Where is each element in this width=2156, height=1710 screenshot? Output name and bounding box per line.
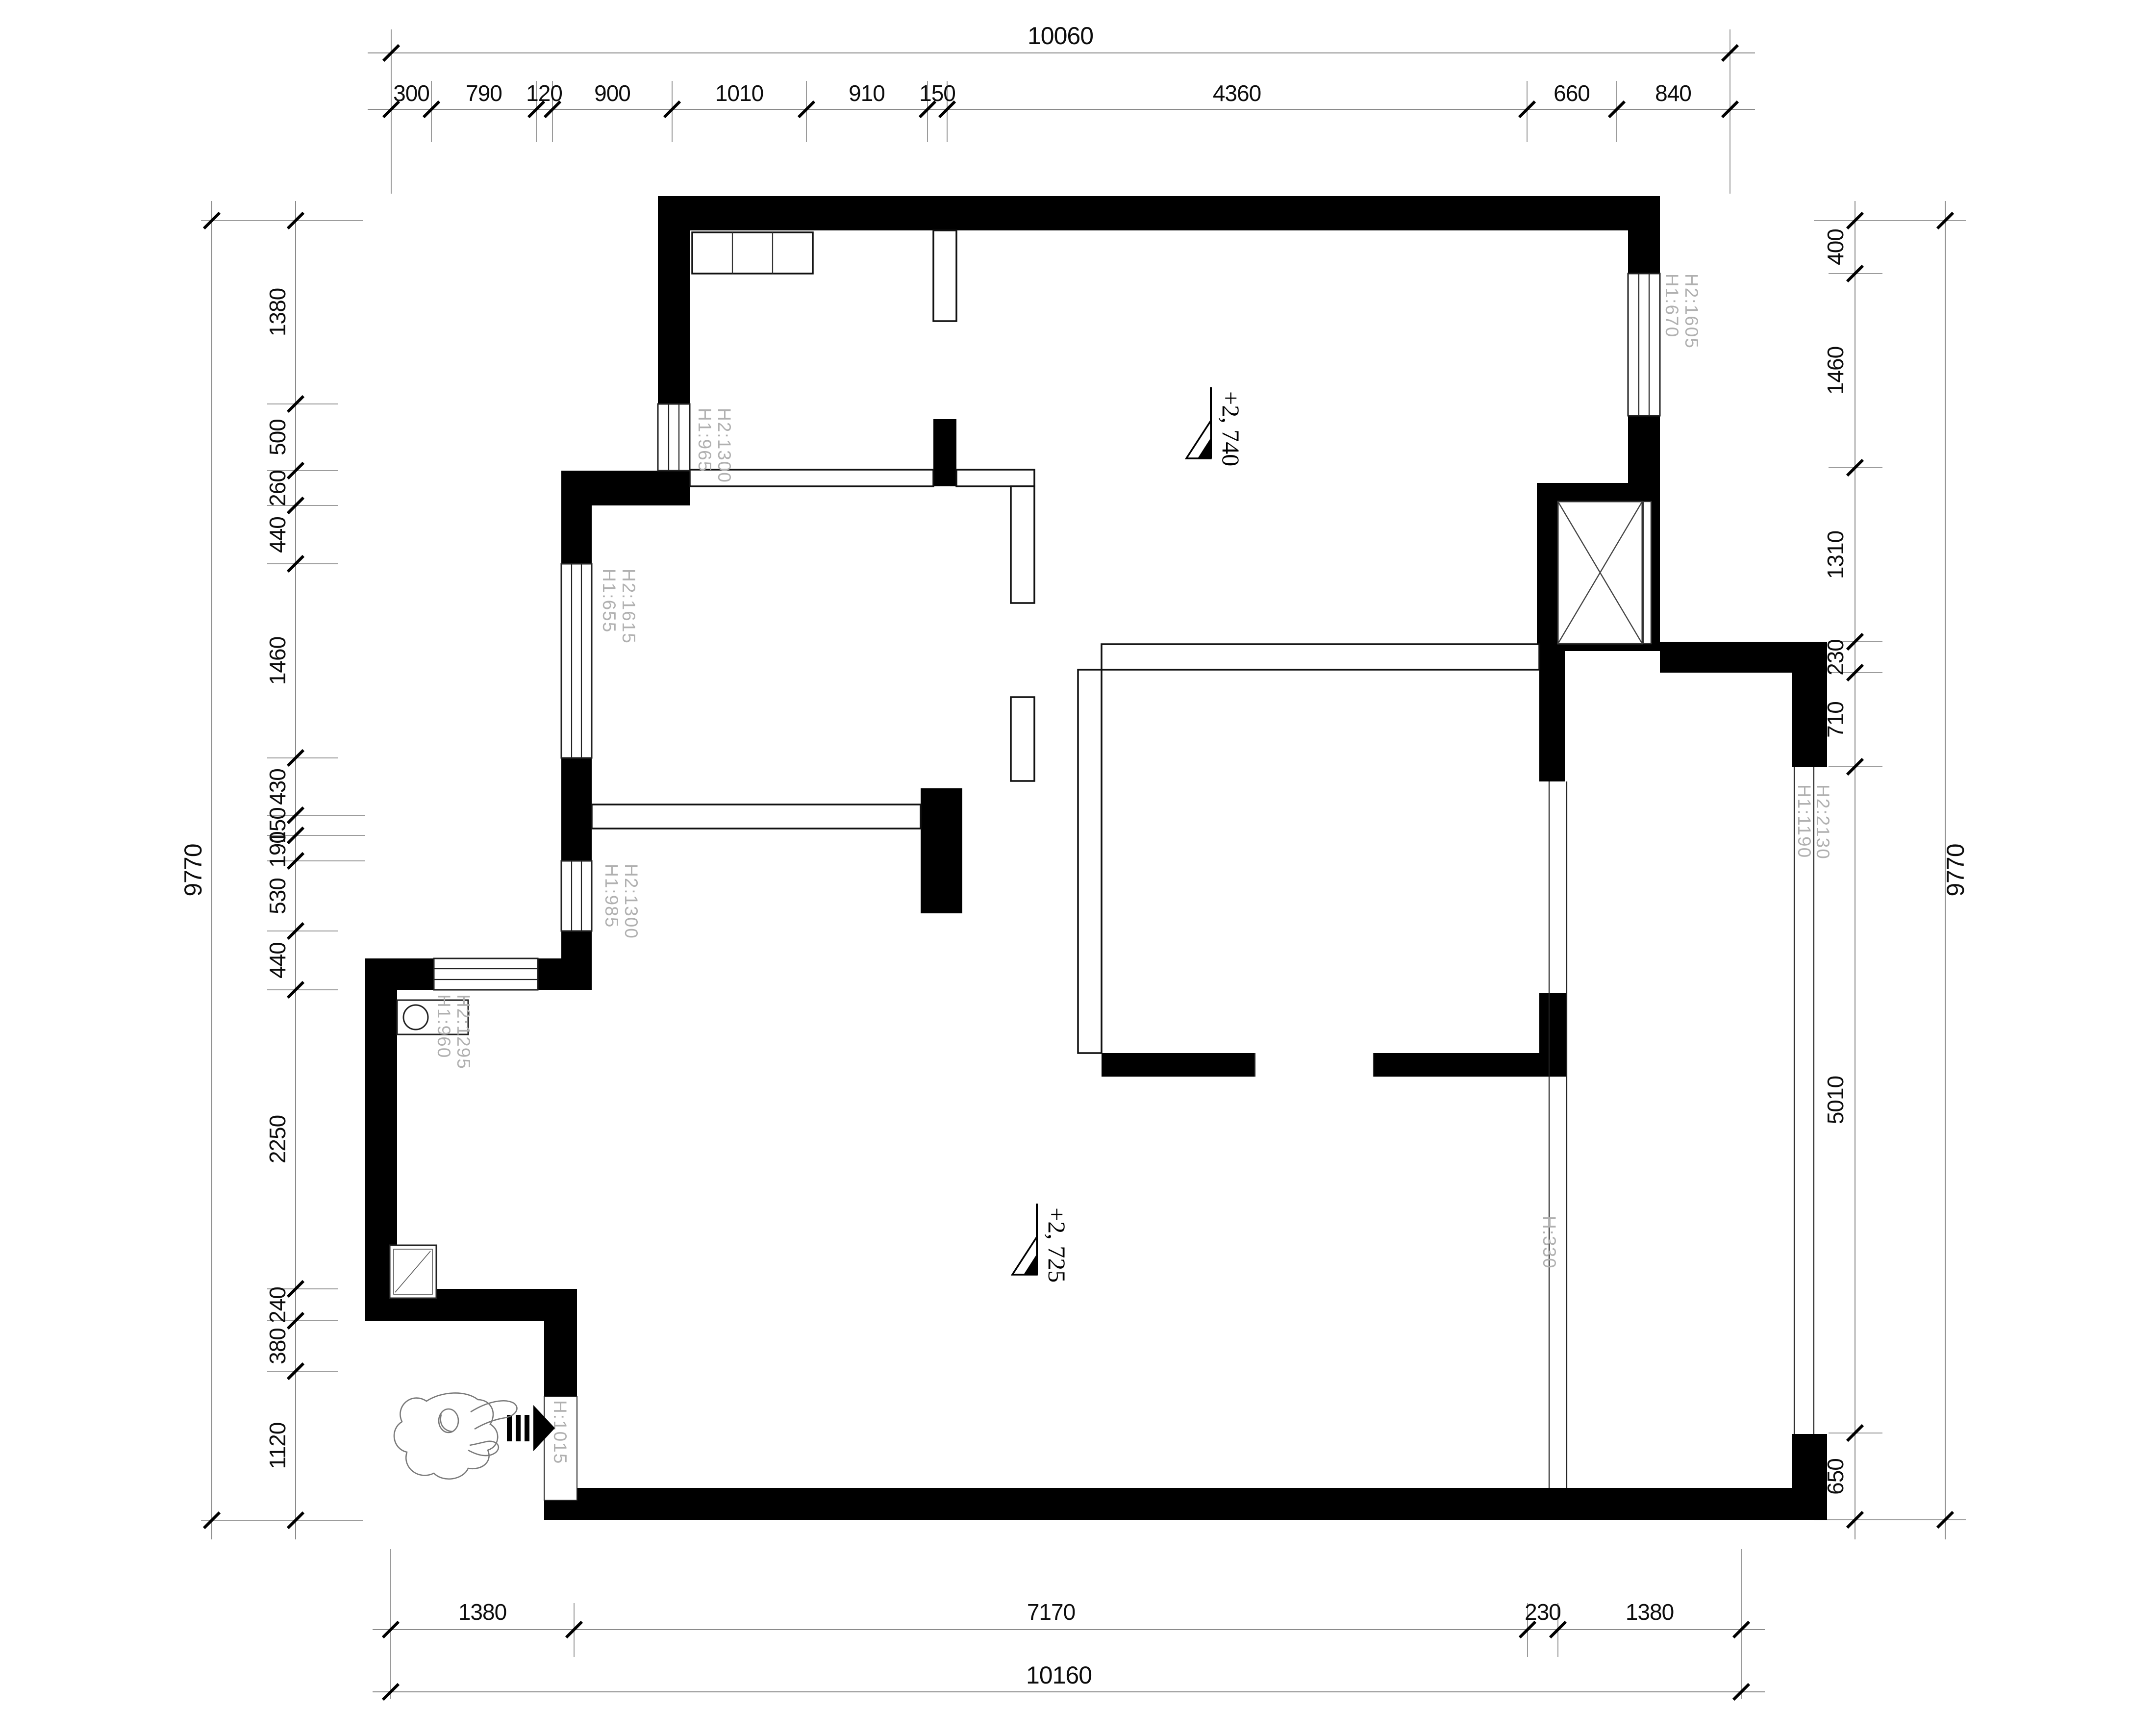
wall-bottom [577, 1488, 1792, 1520]
vent-shaft-box [390, 1245, 436, 1298]
dim-bottom-0: 1380 [458, 1599, 506, 1625]
wall-right-column [1792, 642, 1827, 767]
window-balcony-inner-line [1549, 781, 1567, 1488]
window-mid-left [561, 564, 592, 758]
dim-right-2: 1310 [1823, 531, 1848, 579]
dim-total-left: 9770 [179, 844, 207, 896]
window-right-top [1628, 274, 1660, 416]
opening-labels: H1:965 H2:1300 H1:655 H2:1615 H1:985 H2:… [434, 274, 1833, 1464]
extension-lines-top [391, 29, 1730, 194]
label-entry-door: H:1015 [550, 1400, 570, 1464]
partition-horiz-a2 [956, 470, 1034, 486]
wall-left-b [561, 758, 592, 861]
person-figure-icon [394, 1393, 517, 1479]
wall-kitchen-top-right [538, 958, 592, 990]
door-jambs-bedroom [1255, 1053, 1374, 1077]
dim-top-3: 900 [594, 80, 630, 106]
dim-chain-bottom: 10160 1380 7170 230 1380 [458, 1599, 1674, 1689]
floor-plan-canvas: 10060 300 790 120 900 1010 910 150 4360 … [0, 0, 2156, 1710]
label-win-right-main-h1: H1:1190 [1794, 784, 1814, 858]
wall-entry-corner [544, 1500, 577, 1520]
dim-top-8: 660 [1554, 80, 1590, 106]
label-win-low-left-h2: H2:1300 [621, 864, 641, 939]
dim-left-4: 1460 [265, 637, 290, 685]
dim-top-1: 790 [466, 80, 502, 106]
wall-room-divider [561, 471, 690, 505]
window-top-left [658, 404, 690, 471]
label-win-right-main-h2: H2:2130 [1813, 784, 1833, 860]
extension-lines-left [201, 221, 365, 1520]
elevator [1558, 502, 1651, 644]
dim-left-12: 380 [265, 1328, 290, 1364]
dim-left-5: 430 [265, 769, 290, 805]
dim-left-13: 1120 [265, 1423, 290, 1469]
label-win-right-top-h1: H1:670 [1662, 274, 1682, 338]
dim-left-9: 440 [265, 942, 290, 979]
dim-top-7: 4360 [1213, 80, 1261, 106]
label-win-kitchen-h2: H2:1295 [453, 994, 474, 1070]
wall-mid-right-stub [1539, 993, 1567, 1077]
wall-upper-left [658, 230, 690, 404]
interior-partitions [592, 230, 1539, 1077]
elevator-door [1643, 502, 1651, 644]
dim-right-0: 400 [1823, 229, 1848, 265]
dim-chain-top: 10060 300 790 120 900 1010 910 150 4360 … [393, 22, 1691, 106]
wall-block-mid [921, 788, 962, 913]
wall-top-right-corner [1628, 196, 1660, 275]
dim-top-4: 1010 [715, 80, 763, 106]
label-win-low-left-h1: H1:985 [602, 864, 622, 928]
dim-left-1: 500 [265, 419, 290, 455]
wall-top [658, 196, 1660, 230]
label-win-top-left-h1: H1:965 [695, 408, 715, 472]
wall-bedroom-s2 [1374, 1053, 1539, 1077]
wall-left-c [561, 505, 592, 564]
dim-chain-right: 9770 400 1460 1310 230 710 5010 650 [1823, 229, 1969, 1495]
wall-below-elevator [1539, 644, 1565, 781]
dim-left-7: 190 [265, 831, 290, 868]
label-win-top-left-h2: H2:1300 [714, 408, 734, 483]
label-win-mid-left-h1: H1:655 [599, 569, 619, 633]
level-marker-upper: +2, 740 [1186, 387, 1245, 466]
dim-chain-left: 9770 1380 500 260 440 1460 430 150 190 5… [179, 288, 290, 1469]
level-value-upper: +2, 740 [1217, 391, 1245, 466]
wall-bottom-right-corner [1792, 1434, 1827, 1520]
dim-left-2: 260 [265, 470, 290, 506]
dim-top-9: 840 [1655, 80, 1691, 106]
window-kitchen [434, 958, 538, 990]
wall-kitchen-top-left [365, 958, 434, 990]
partition-tpost-2 [1011, 697, 1034, 781]
dim-top-6: 150 [919, 80, 955, 106]
partition-stub-top [933, 230, 956, 321]
dim-left-8: 530 [265, 878, 290, 914]
wall-step-right [1660, 642, 1792, 673]
wall-right-a [1628, 416, 1660, 484]
dim-right-5: 5010 [1823, 1076, 1848, 1124]
dim-top-2: 120 [526, 80, 562, 106]
wall-entry-upper [544, 1321, 577, 1397]
dim-top-0: 300 [393, 80, 429, 106]
dim-total-bottom: 10160 [1026, 1661, 1092, 1689]
wall-left-a [561, 931, 592, 960]
dim-bottom-2: 230 [1525, 1599, 1561, 1625]
gas-meter-circle-icon [403, 1005, 428, 1030]
dim-left-10: 2250 [265, 1115, 290, 1163]
wall-stub-black [933, 419, 956, 486]
dim-bottom-1: 7170 [1027, 1599, 1075, 1625]
partition-horiz-right [1102, 644, 1539, 670]
level-marker-lower: +2, 725 [1012, 1204, 1071, 1282]
window-low-left [561, 861, 592, 931]
level-value-lower: +2, 725 [1043, 1207, 1071, 1282]
dim-bottom-3: 1380 [1626, 1599, 1674, 1625]
wall-bedroom-s1 [1102, 1053, 1255, 1077]
partition-mid-left [592, 805, 921, 829]
label-win-right-top-h2: H2:1605 [1681, 274, 1702, 349]
dim-total-top: 10060 [1028, 22, 1093, 50]
window-right-main-glazing [1794, 767, 1814, 1434]
dim-right-1: 1460 [1823, 347, 1848, 395]
dim-top-5: 910 [849, 80, 885, 106]
partition-tpost-1 [1011, 486, 1034, 603]
wall-kitchen-left [365, 990, 397, 1289]
label-win-mid-left-h2: H2:1615 [619, 569, 639, 644]
dim-left-0: 1380 [265, 288, 290, 336]
dim-left-11: 240 [265, 1287, 290, 1323]
label-balcony-inner: H:330 [1539, 1216, 1559, 1269]
label-win-kitchen-h1: H1:960 [434, 994, 454, 1058]
partition-vert-right [1078, 670, 1102, 1053]
dim-left-3: 440 [265, 517, 290, 553]
closet [692, 232, 813, 274]
dim-total-right: 9770 [1942, 844, 1969, 896]
